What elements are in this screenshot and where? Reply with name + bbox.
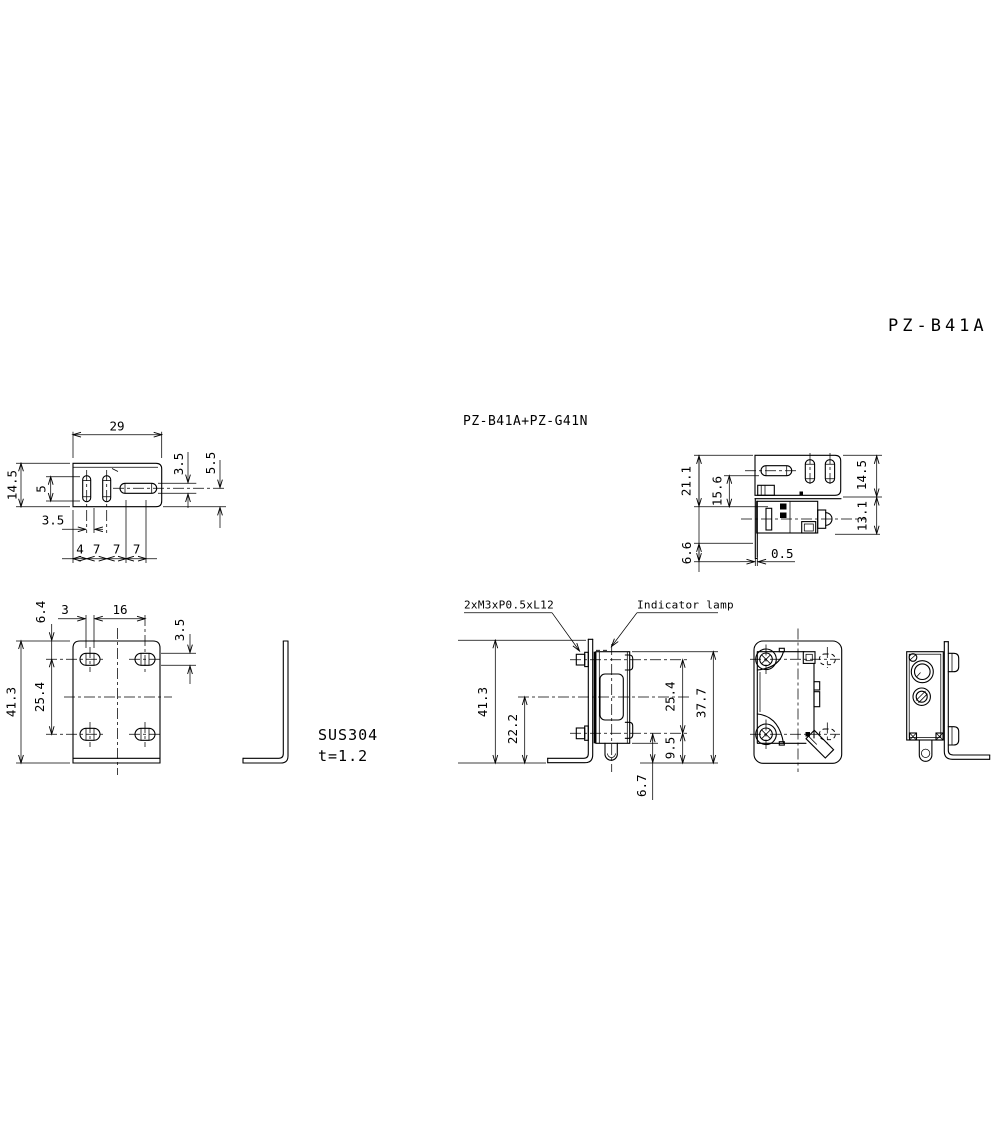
callout-screw-spec: 2xM3xP0.5xL12	[464, 598, 554, 611]
callout-indicator-lamp: Indicator lamp	[637, 598, 734, 611]
dim-bracket-front-height: 41.3	[4, 687, 19, 717]
dim-assembly-front-sensor-height: 37.7	[694, 688, 709, 718]
dim-assembly-front-axis-to-bottom: 22.2	[505, 714, 520, 744]
assembly-label: PZ-B41A+PZ-G41N	[463, 414, 588, 429]
dim-assembly-top-overall-depth: 21.1	[679, 466, 694, 496]
dim-bracket-top-width: 29	[109, 419, 124, 434]
dim-bracket-front-hole-pitch-y: 25.4	[32, 682, 47, 712]
sheet-background	[0, 0, 1000, 1122]
dim-bracket-front-slot-travel: 3	[61, 602, 69, 617]
dim-assembly-top-leg-below: 6.6	[679, 542, 694, 565]
dim-assembly-top-sensor-depth: 13.1	[855, 501, 870, 531]
dim-bracket-front-top-to-hole: 6.4	[33, 601, 48, 624]
dim-bracket-top-depth: 14.5	[5, 470, 20, 500]
dim-bracket-top-pitch-1: 4	[76, 542, 84, 557]
dim-bracket-front-hole-pitch-x: 16	[112, 602, 127, 617]
dim-bracket-top-slot-width: 3.5	[171, 453, 186, 476]
drawing-sheet: PZ-B41A PZ-B41A+PZ-G41N 29 14.5 5 3.5	[0, 0, 1000, 1122]
dim-assembly-top-axis-depth: 15.6	[710, 476, 725, 506]
dim-bracket-top-pitch-2: 7	[93, 542, 101, 557]
dim-assembly-front-cable-clearance: 6.7	[634, 774, 649, 797]
material-thickness: t=1.2	[318, 747, 368, 765]
dim-bracket-top-slot-offset: 3.5	[42, 513, 65, 528]
cad-drawing: PZ-B41A PZ-B41A+PZ-G41N 29 14.5 5 3.5	[0, 0, 1000, 1122]
dim-assembly-front-height: 41.3	[475, 687, 490, 717]
dim-assembly-front-screw-pitch: 25.4	[663, 681, 678, 711]
dim-assembly-top-plate-depth: 14.5	[854, 460, 869, 490]
dim-bracket-top-pitch-4: 7	[133, 542, 141, 557]
dim-bracket-top-pitch-3: 7	[113, 542, 121, 557]
dim-bracket-top-edge-to-slot: 5.5	[203, 452, 218, 475]
dim-assembly-front-screw-to-bottom: 9.5	[663, 737, 678, 760]
dim-bracket-top-slot-length: 5	[34, 485, 49, 493]
dim-assembly-top-gap: 0.5	[771, 546, 794, 561]
drawing-title: PZ-B41A	[888, 316, 988, 336]
dim-bracket-front-hole-width: 3.5	[172, 619, 187, 642]
material-name: SUS304	[318, 726, 378, 744]
